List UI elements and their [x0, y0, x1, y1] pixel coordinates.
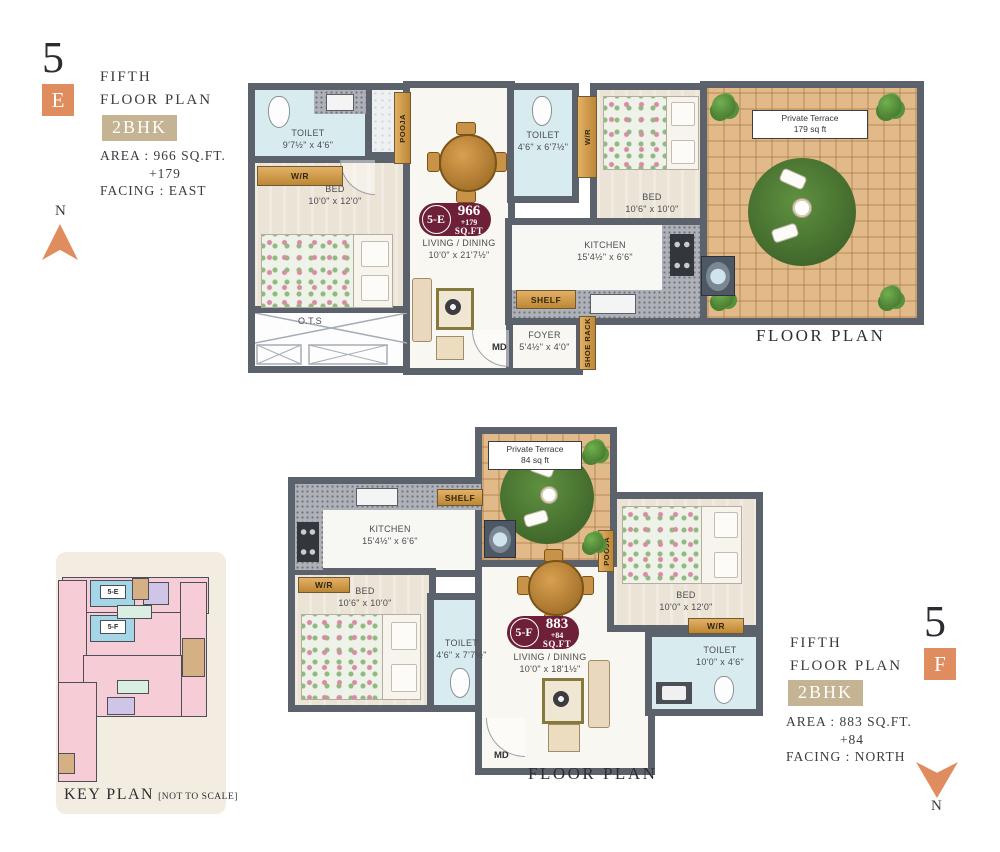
side-table-icon — [436, 336, 464, 360]
room-label-bed2-f: BED10'0" x 12'0" — [644, 590, 728, 613]
bed-pillow — [361, 275, 389, 301]
bed-pillow — [714, 552, 738, 578]
bed-icon-f1 — [301, 614, 421, 700]
garden-table-icon — [540, 486, 558, 504]
bed-pillow — [714, 512, 738, 538]
washing-machine-icon-f — [484, 520, 516, 558]
bed-quilt — [604, 97, 667, 169]
dining-table-icon-e — [439, 134, 497, 192]
plan-e-area: AREA : 966 SQ.FT. — [100, 148, 226, 163]
floor-number-e: 5 — [42, 36, 64, 80]
north-arrow-icon-f — [916, 762, 958, 798]
room-label-toilet1-f: TOILET4'6" x 7'7½" — [434, 638, 489, 661]
toilet-bowl-icon — [532, 96, 552, 126]
plan-e-meta: AREA : 966 SQ.FT. +179 FACING : EAST — [100, 147, 230, 200]
carpet-icon-e — [436, 288, 474, 330]
washing-machine-icon-e — [701, 256, 735, 296]
bed-icon-f2 — [622, 506, 742, 584]
unit-area-badge-f: 5-F 883 +84 SQ.FT — [508, 617, 578, 648]
plan-e-facing: FACING : EAST — [100, 183, 207, 198]
plant-icon — [880, 286, 902, 308]
dining-table-icon-f — [528, 560, 584, 616]
room-label-foyer-e: FOYER5'4½" x 4'0" — [513, 330, 576, 353]
bed-pillow — [671, 102, 695, 126]
unit-letter-e: E — [42, 84, 74, 116]
unit-letter-f: F — [924, 648, 956, 680]
compass-letter-f: N — [931, 798, 942, 815]
plan-f-title-line1: FIFTH — [790, 635, 842, 651]
wardrobe-bar-f2: W/R — [688, 618, 744, 634]
floor-number-f: 5 — [924, 600, 946, 644]
bhk-badge-e: 2BHK — [102, 115, 177, 141]
key-plan-tag-e: 5-E — [100, 585, 126, 599]
shelf-bar-f: SHELF — [437, 489, 483, 506]
key-plan-caption: KEY PLAN [NOT TO SCALE] — [64, 786, 238, 804]
unit-area-badge-e: 5-E 966 +179 SQ.FT — [420, 204, 490, 235]
room-label-living-e: LIVING / DINING10'0" x 21'7½" — [412, 238, 506, 261]
plant-icon — [878, 94, 902, 118]
plan-e-title-line2: FLOOR PLAN — [100, 92, 212, 108]
bed-pillow — [361, 241, 389, 267]
room-label-bed2-e: BED10'6" x 10'0" — [612, 192, 692, 215]
fan-icon — [553, 691, 569, 707]
plan-e-title: FIFTH FLOOR PLAN — [100, 66, 212, 113]
plant-icon — [712, 94, 736, 118]
garden-table-icon — [792, 198, 812, 218]
room-label-toilet1-e: TOILET9'7½" x 4'6" — [258, 128, 358, 151]
plan-f-title-line2: FLOOR PLAN — [790, 658, 902, 674]
brochure-page: 5 E FIFTH FLOOR PLAN 2BHK AREA : 966 SQ.… — [0, 0, 1000, 852]
bed-quilt — [623, 507, 702, 583]
pooja-strip-e: POOJA — [394, 92, 411, 164]
plan-e-title-line1: FIFTH — [100, 69, 152, 85]
room-label-living-f: LIVING / DINING10'0" x 18'1½" — [500, 652, 600, 675]
key-plan-block — [117, 605, 152, 619]
room-label-ots-e: O.T.S — [280, 316, 340, 328]
room-label-bed1-f: BED10'6" x 10'0" — [325, 586, 405, 609]
key-plan-block — [117, 680, 149, 694]
plan-f-meta: AREA : 883 SQ.FT. +84 FACING : NORTH — [786, 713, 918, 766]
basin-counter-f — [656, 682, 692, 704]
fan-icon — [445, 299, 461, 315]
key-plan-block — [58, 753, 75, 774]
plant-icon — [584, 440, 606, 462]
bhk-badge-f: 2BHK — [788, 680, 863, 706]
key-plan-block — [132, 578, 149, 600]
basin-sink-icon — [326, 94, 354, 111]
main-door-label-e: MD — [492, 342, 507, 353]
toilet-bowl-icon — [268, 96, 290, 128]
key-plan-card: 5-E 5-F KEY PLAN [NOT TO SCALE] — [56, 552, 226, 814]
kitchen-sink-icon-e — [590, 294, 636, 314]
bed-pillow — [391, 664, 417, 692]
room-label-toilet2-f: TOILET10'0" x 4'6" — [688, 645, 752, 668]
kitchen-sink-icon-f — [356, 488, 398, 506]
plan-f-area: AREA : 883 SQ.FT. — [786, 714, 912, 729]
carpet-icon-f — [542, 678, 584, 724]
plan-f-facing: FACING : NORTH — [786, 749, 905, 764]
main-door-label-f: MD — [494, 750, 509, 761]
bed-icon-e1 — [261, 234, 393, 308]
north-arrow-icon-e — [42, 224, 78, 260]
terrace-label-e: Private Terrace 179 sq ft — [752, 110, 868, 139]
toilet-bowl-icon — [714, 676, 734, 704]
room-label-bed1-e: BED10'0" x 12'0" — [290, 184, 380, 207]
wardrobe-bar-e1: W/R — [257, 166, 343, 186]
stove-icon-e — [670, 234, 694, 276]
plant-icon — [584, 532, 604, 552]
plan-f-title: FIFTH FLOOR PLAN — [790, 632, 902, 679]
room-label-kitchen-e: KITCHEN15'4½" x 6'6" — [555, 240, 655, 263]
room-label-kitchen-f: KITCHEN15'4½" x 6'6" — [340, 524, 440, 547]
compass-letter-e: N — [55, 203, 66, 220]
sofa-icon-e — [412, 278, 432, 342]
shoe-rack-strip-e: SHOE RACK — [579, 316, 596, 370]
floor-plan-caption-f: FLOOR PLAN — [528, 764, 657, 784]
floor-plan-caption-e: FLOOR PLAN — [756, 326, 885, 346]
plan-f-area-extra: +84 — [786, 731, 918, 749]
plan-e-area-extra: +179 — [100, 165, 230, 183]
terrace-label-f: Private Terrace 84 sq ft — [488, 441, 582, 470]
key-plan-block — [107, 697, 135, 715]
bed-quilt — [262, 235, 354, 307]
side-table-icon — [548, 724, 580, 752]
toilet-bowl-icon — [450, 668, 470, 698]
stove-icon-f — [297, 522, 319, 562]
bed-quilt — [302, 615, 383, 699]
key-plan-tag-f: 5-F — [100, 620, 126, 634]
wardrobe-strip-e2: W/R — [577, 96, 597, 178]
bed-pillow — [671, 140, 695, 164]
key-plan-block — [182, 638, 205, 677]
bed-pillow — [391, 622, 417, 650]
bed-icon-e2 — [603, 96, 699, 170]
room-label-toilet2-e: TOILET4'6" x 6'7½" — [514, 130, 572, 153]
shelf-bar-e: SHELF — [516, 290, 576, 309]
